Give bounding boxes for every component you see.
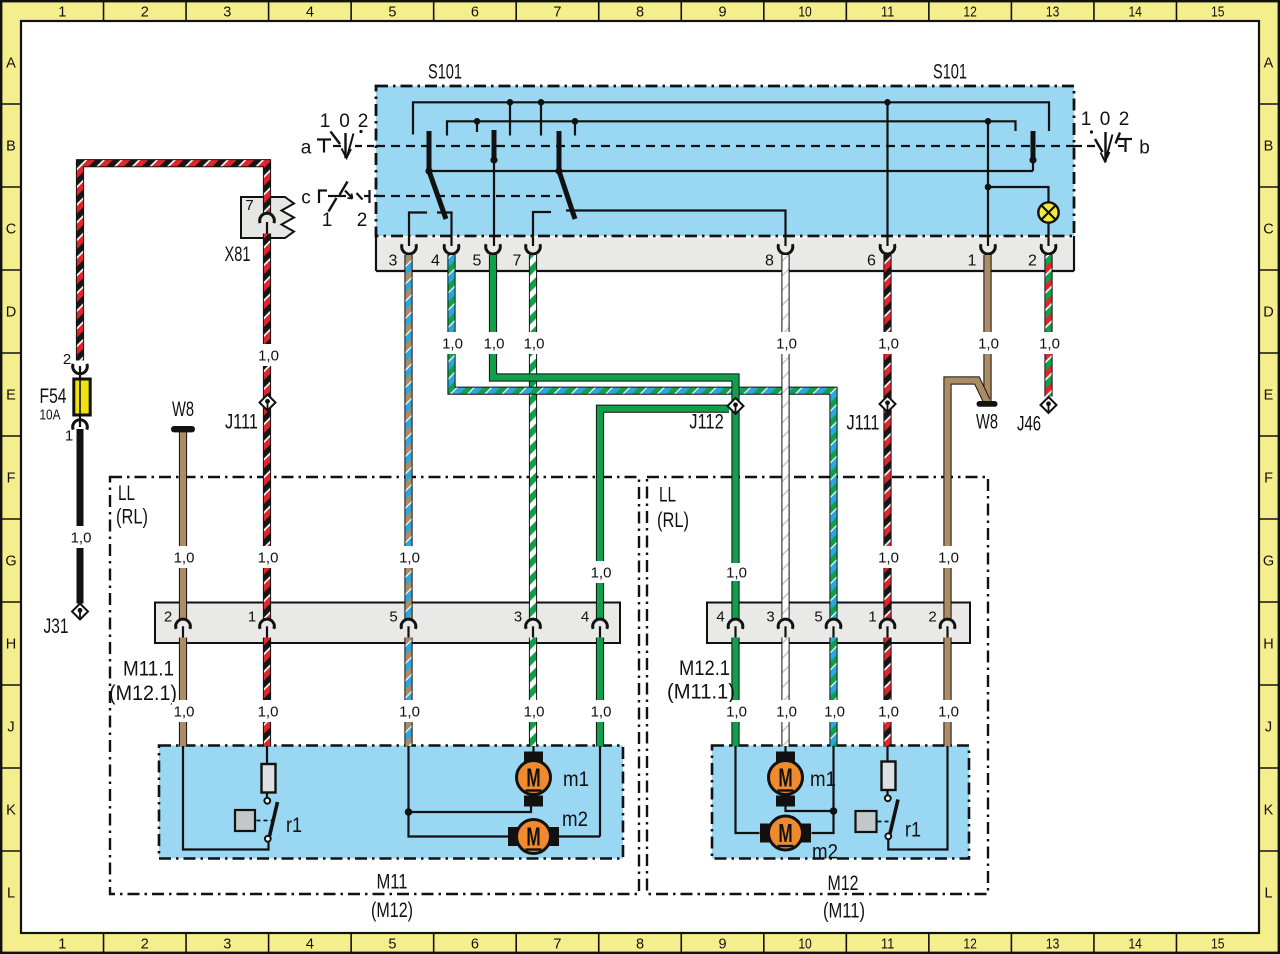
svg-text:12: 12 xyxy=(963,5,977,21)
svg-text:4: 4 xyxy=(431,253,440,270)
svg-text:11: 11 xyxy=(881,5,895,21)
svg-text:G: G xyxy=(1263,554,1274,570)
svg-text:b: b xyxy=(1139,138,1150,159)
svg-text:6: 6 xyxy=(471,5,479,21)
svg-text:D: D xyxy=(1263,305,1273,321)
svg-text:15: 15 xyxy=(1211,5,1225,21)
svg-text:r1: r1 xyxy=(905,819,921,842)
svg-text:A: A xyxy=(1264,56,1274,72)
svg-text:J111: J111 xyxy=(847,412,880,435)
svg-text:5: 5 xyxy=(388,5,396,21)
svg-text:3: 3 xyxy=(766,609,774,626)
svg-text:1,0: 1,0 xyxy=(591,704,612,721)
svg-text:LL: LL xyxy=(118,482,135,505)
svg-text:2: 2 xyxy=(1028,253,1037,270)
svg-text:1,0: 1,0 xyxy=(776,704,797,721)
svg-text:5: 5 xyxy=(389,609,397,626)
svg-text:1,0: 1,0 xyxy=(591,565,612,582)
svg-text:m1: m1 xyxy=(563,768,589,791)
svg-text:14: 14 xyxy=(1128,937,1142,953)
svg-text:2: 2 xyxy=(141,5,149,21)
svg-text:10A: 10A xyxy=(40,408,61,424)
svg-text:B: B xyxy=(6,139,16,155)
svg-text:9: 9 xyxy=(718,5,726,21)
svg-text:10: 10 xyxy=(798,5,812,21)
svg-text:1: 1 xyxy=(58,937,66,953)
svg-text:W8: W8 xyxy=(976,411,998,434)
svg-text:M: M xyxy=(778,818,792,848)
svg-text:1,0: 1,0 xyxy=(938,704,959,721)
svg-text:(M12): (M12) xyxy=(371,899,413,922)
svg-text:m2: m2 xyxy=(812,841,838,864)
svg-text:M: M xyxy=(526,763,540,793)
svg-text:E: E xyxy=(6,388,16,404)
svg-text:7: 7 xyxy=(513,253,522,270)
svg-text:B: B xyxy=(1264,139,1274,155)
svg-text:(M11): (M11) xyxy=(823,900,865,923)
svg-text:F54: F54 xyxy=(40,385,67,408)
svg-text:1,0: 1,0 xyxy=(258,704,279,721)
svg-text:3: 3 xyxy=(389,253,398,270)
svg-text:7: 7 xyxy=(553,937,561,953)
svg-text:S101: S101 xyxy=(428,61,462,84)
svg-text:1,0: 1,0 xyxy=(174,550,195,567)
svg-text:1,0: 1,0 xyxy=(978,336,999,353)
svg-text:M: M xyxy=(526,822,540,852)
svg-text:(RL): (RL) xyxy=(116,506,148,529)
svg-text:1,0: 1,0 xyxy=(71,530,92,547)
svg-text:1,0: 1,0 xyxy=(824,704,845,721)
svg-text:F: F xyxy=(1264,471,1273,487)
svg-text:4: 4 xyxy=(306,5,314,21)
svg-text:M12: M12 xyxy=(828,872,859,895)
svg-text:H: H xyxy=(1263,637,1273,653)
svg-text:1,0: 1,0 xyxy=(174,704,195,721)
svg-text:J112: J112 xyxy=(689,411,724,434)
svg-text:13: 13 xyxy=(1046,937,1060,953)
svg-text:1,0: 1,0 xyxy=(726,565,747,582)
svg-text:6: 6 xyxy=(867,253,876,270)
svg-text:J: J xyxy=(7,720,14,736)
svg-text:1,0: 1,0 xyxy=(524,336,545,353)
svg-text:3: 3 xyxy=(223,937,231,953)
svg-text:G: G xyxy=(5,554,16,570)
svg-text:a: a xyxy=(301,138,312,159)
svg-text:1,0: 1,0 xyxy=(776,336,797,353)
svg-text:A: A xyxy=(6,56,16,72)
svg-text:6: 6 xyxy=(471,937,479,953)
svg-text:1: 1 xyxy=(322,210,333,231)
svg-text:2: 2 xyxy=(141,937,149,953)
svg-text:8: 8 xyxy=(636,937,644,953)
svg-text:r1: r1 xyxy=(286,814,302,837)
svg-text:8: 8 xyxy=(636,5,644,21)
svg-text:8: 8 xyxy=(765,253,774,270)
svg-text:3: 3 xyxy=(514,609,522,626)
svg-text:1,0: 1,0 xyxy=(258,550,279,567)
svg-text:15: 15 xyxy=(1211,937,1225,953)
svg-text:1: 1 xyxy=(248,609,256,626)
svg-text:2: 2 xyxy=(358,111,369,132)
svg-text:5: 5 xyxy=(814,609,822,626)
svg-text:H: H xyxy=(6,637,16,653)
svg-text:M11.1: M11.1 xyxy=(123,658,174,681)
svg-text:(M12.1): (M12.1) xyxy=(109,682,177,705)
svg-text:1,0: 1,0 xyxy=(726,704,747,721)
svg-text:0: 0 xyxy=(339,111,350,132)
svg-text:1,0: 1,0 xyxy=(442,336,463,353)
svg-text:m2: m2 xyxy=(562,808,588,831)
svg-text:m1: m1 xyxy=(810,768,836,791)
svg-text:1: 1 xyxy=(58,5,66,21)
svg-text:C: C xyxy=(1263,222,1273,238)
svg-text:E: E xyxy=(1264,388,1274,404)
svg-text:W8: W8 xyxy=(172,398,194,421)
svg-text:LL: LL xyxy=(659,484,676,507)
svg-text:1,0: 1,0 xyxy=(484,336,505,353)
svg-text:(M11.1): (M11.1) xyxy=(667,681,735,704)
svg-text:L: L xyxy=(7,886,15,902)
svg-text:2: 2 xyxy=(1119,109,1130,130)
svg-text:1,0: 1,0 xyxy=(399,550,420,567)
svg-text:M12.1: M12.1 xyxy=(679,657,730,680)
svg-text:4: 4 xyxy=(581,609,589,626)
svg-text:0: 0 xyxy=(1100,109,1111,130)
svg-text:12: 12 xyxy=(963,937,977,953)
svg-text:5: 5 xyxy=(473,253,482,270)
svg-text:7: 7 xyxy=(245,197,253,214)
svg-text:X81: X81 xyxy=(225,243,251,266)
svg-text:(RL): (RL) xyxy=(657,509,689,532)
svg-text:C: C xyxy=(6,222,16,238)
svg-text:5: 5 xyxy=(388,937,396,953)
svg-text:4: 4 xyxy=(306,937,314,953)
svg-text:1,0: 1,0 xyxy=(399,704,420,721)
svg-text:1,0: 1,0 xyxy=(878,704,899,721)
svg-text:K: K xyxy=(1264,803,1274,819)
svg-text:K: K xyxy=(6,803,16,819)
svg-text:1,0: 1,0 xyxy=(878,336,899,353)
svg-text:1: 1 xyxy=(868,609,876,626)
svg-text:1,0: 1,0 xyxy=(1039,336,1060,353)
svg-text:S101: S101 xyxy=(933,61,967,84)
svg-text:J46: J46 xyxy=(1017,413,1041,436)
svg-text:M11: M11 xyxy=(377,871,408,894)
svg-text:M: M xyxy=(778,763,792,793)
svg-text:J: J xyxy=(1265,720,1272,736)
svg-text:1: 1 xyxy=(968,253,977,270)
svg-text:7: 7 xyxy=(553,5,561,21)
svg-text:J31: J31 xyxy=(44,615,69,638)
svg-text:2: 2 xyxy=(357,210,368,231)
svg-text:c: c xyxy=(301,188,311,209)
svg-text:13: 13 xyxy=(1046,5,1060,21)
svg-text:2: 2 xyxy=(63,351,71,368)
svg-text:9: 9 xyxy=(718,937,726,953)
svg-text:4: 4 xyxy=(716,609,724,626)
svg-text:1,0: 1,0 xyxy=(878,550,899,567)
svg-text:1,0: 1,0 xyxy=(938,550,959,567)
svg-text:1: 1 xyxy=(65,428,73,445)
svg-text:1,0: 1,0 xyxy=(524,704,545,721)
svg-text:1: 1 xyxy=(1081,109,1092,130)
svg-text:10: 10 xyxy=(798,937,812,953)
svg-text:1,0: 1,0 xyxy=(258,348,279,365)
svg-text:J111: J111 xyxy=(225,411,258,434)
svg-text:F: F xyxy=(7,471,16,487)
svg-text:3: 3 xyxy=(223,5,231,21)
svg-text:14: 14 xyxy=(1128,5,1142,21)
svg-text:11: 11 xyxy=(881,937,895,953)
svg-text:D: D xyxy=(6,305,16,321)
svg-text:1: 1 xyxy=(320,111,331,132)
svg-text:L: L xyxy=(1264,886,1272,902)
svg-text:2: 2 xyxy=(928,609,936,626)
svg-text:2: 2 xyxy=(164,609,172,626)
